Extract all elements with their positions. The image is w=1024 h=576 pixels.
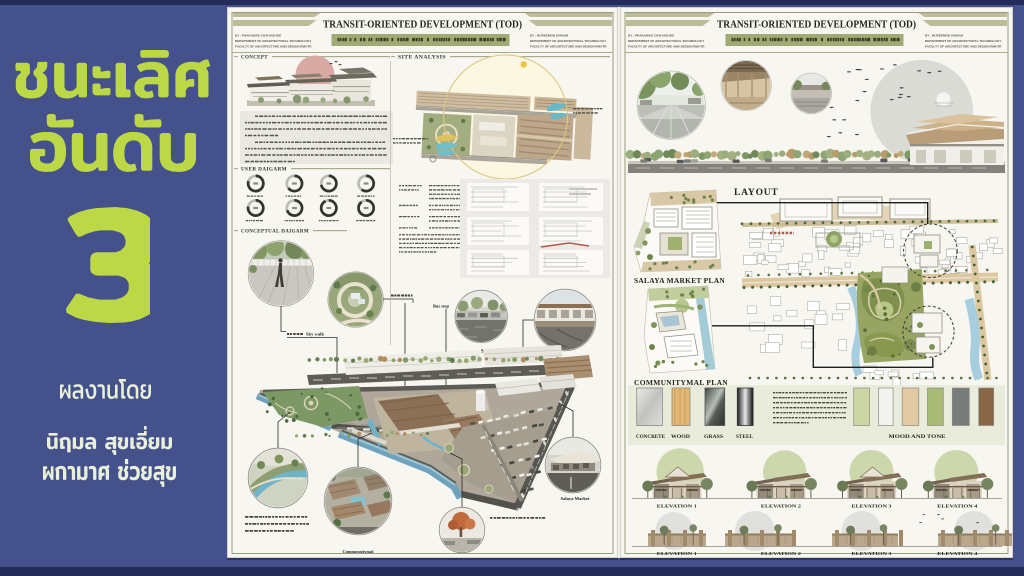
svg-text:CONCRETE: CONCRETE (636, 434, 666, 440)
svg-text:DEPARTMENT OF ARCHITECTURAL TE: DEPARTMENT OF ARCHITECTURAL TECHNOLOGY (628, 39, 705, 43)
svg-text:ELEVATION 2: ELEVATION 2 (761, 504, 802, 509)
svg-text:BY : NUREEMON SUKIAM: BY : NUREEMON SUKIAM (925, 34, 964, 38)
svg-text:CONCEPTUAL DAIGARM: CONCEPTUAL DAIGARM (241, 229, 309, 235)
svg-text:STEEL: STEEL (736, 434, 754, 440)
svg-text:WOOD: WOOD (671, 434, 690, 440)
svg-text:ELEVATION 1: ELEVATION 1 (657, 551, 698, 556)
svg-text:ELEVATION 4: ELEVATION 4 (937, 504, 978, 509)
svg-text:TRANSIT-ORIENTED DEVELOPMENT (: TRANSIT-ORIENTED DEVELOPMENT (TOD) (717, 20, 916, 31)
svg-text:SALAYA MARKET PLAN: SALAYA MARKET PLAN (634, 276, 725, 285)
svg-text:DEPARTMENT OF ARCHITECTURAL TE: DEPARTMENT OF ARCHITECTURAL TECHNOLOGY (235, 39, 312, 43)
svg-text:DEPARTMENT OF ARCHITECTURAL TE: DEPARTMENT OF ARCHITECTURAL TECHNOLOGY (530, 39, 607, 43)
svg-text:LAYOUT: LAYOUT (734, 188, 779, 198)
svg-text:FACULTY OF ARCHITECTURE AND DE: FACULTY OF ARCHITECTURE AND DESIGN RMUTR (235, 45, 312, 49)
svg-text:Salaya Market: Salaya Market (561, 496, 590, 501)
svg-text:ELEVATION 1: ELEVATION 1 (657, 504, 698, 509)
svg-text:ELEVATION 3: ELEVATION 3 (852, 551, 893, 556)
svg-text:FACULTY OF ARCHITECTURE AND DE: FACULTY OF ARCHITECTURE AND DESIGN RMUTR (925, 45, 1002, 49)
svg-text:BY : PHAKAMAS CHAIYASUNG: BY : PHAKAMAS CHAIYASUNG (235, 34, 282, 38)
svg-text:CONCEPT: CONCEPT (241, 55, 268, 61)
svg-text:FACULTY OF ARCHITECTURE AND DE: FACULTY OF ARCHITECTURE AND DESIGN RMUTR (530, 45, 607, 49)
svg-text:MOOD AND TONE: MOOD AND TONE (889, 435, 947, 440)
svg-text:ELEVATION 4: ELEVATION 4 (937, 551, 978, 556)
svg-text:Sky walk: Sky walk (306, 332, 324, 337)
svg-text:Commonsitymal: Commonsitymal (343, 549, 375, 554)
svg-text:Bus stop: Bus stop (433, 304, 450, 309)
svg-text:BY : PHAKAMAS CHAIYASUNG: BY : PHAKAMAS CHAIYASUNG (628, 34, 675, 38)
svg-text:FACULTY OF ARCHITECTURE AND DE: FACULTY OF ARCHITECTURE AND DESIGN RMUTR (628, 45, 705, 49)
svg-text:ELEVATION 2: ELEVATION 2 (761, 551, 802, 556)
svg-text:TRANSIT-ORIENTED DEVELOPMENT (: TRANSIT-ORIENTED DEVELOPMENT (TOD) (323, 20, 522, 31)
svg-text:DEPARTMENT OF ARCHITECTURAL TE: DEPARTMENT OF ARCHITECTURAL TECHNOLOGY (925, 39, 1002, 43)
svg-text:USER DAIGARM: USER DAIGARM (241, 167, 287, 173)
svg-text:SITE ANALYSIS: SITE ANALYSIS (398, 55, 446, 61)
svg-text:ELEVATION 3: ELEVATION 3 (852, 504, 893, 509)
svg-text:BY : NUREEMON SUKIAM: BY : NUREEMON SUKIAM (530, 34, 569, 38)
svg-text:GRASS: GRASS (704, 434, 723, 440)
